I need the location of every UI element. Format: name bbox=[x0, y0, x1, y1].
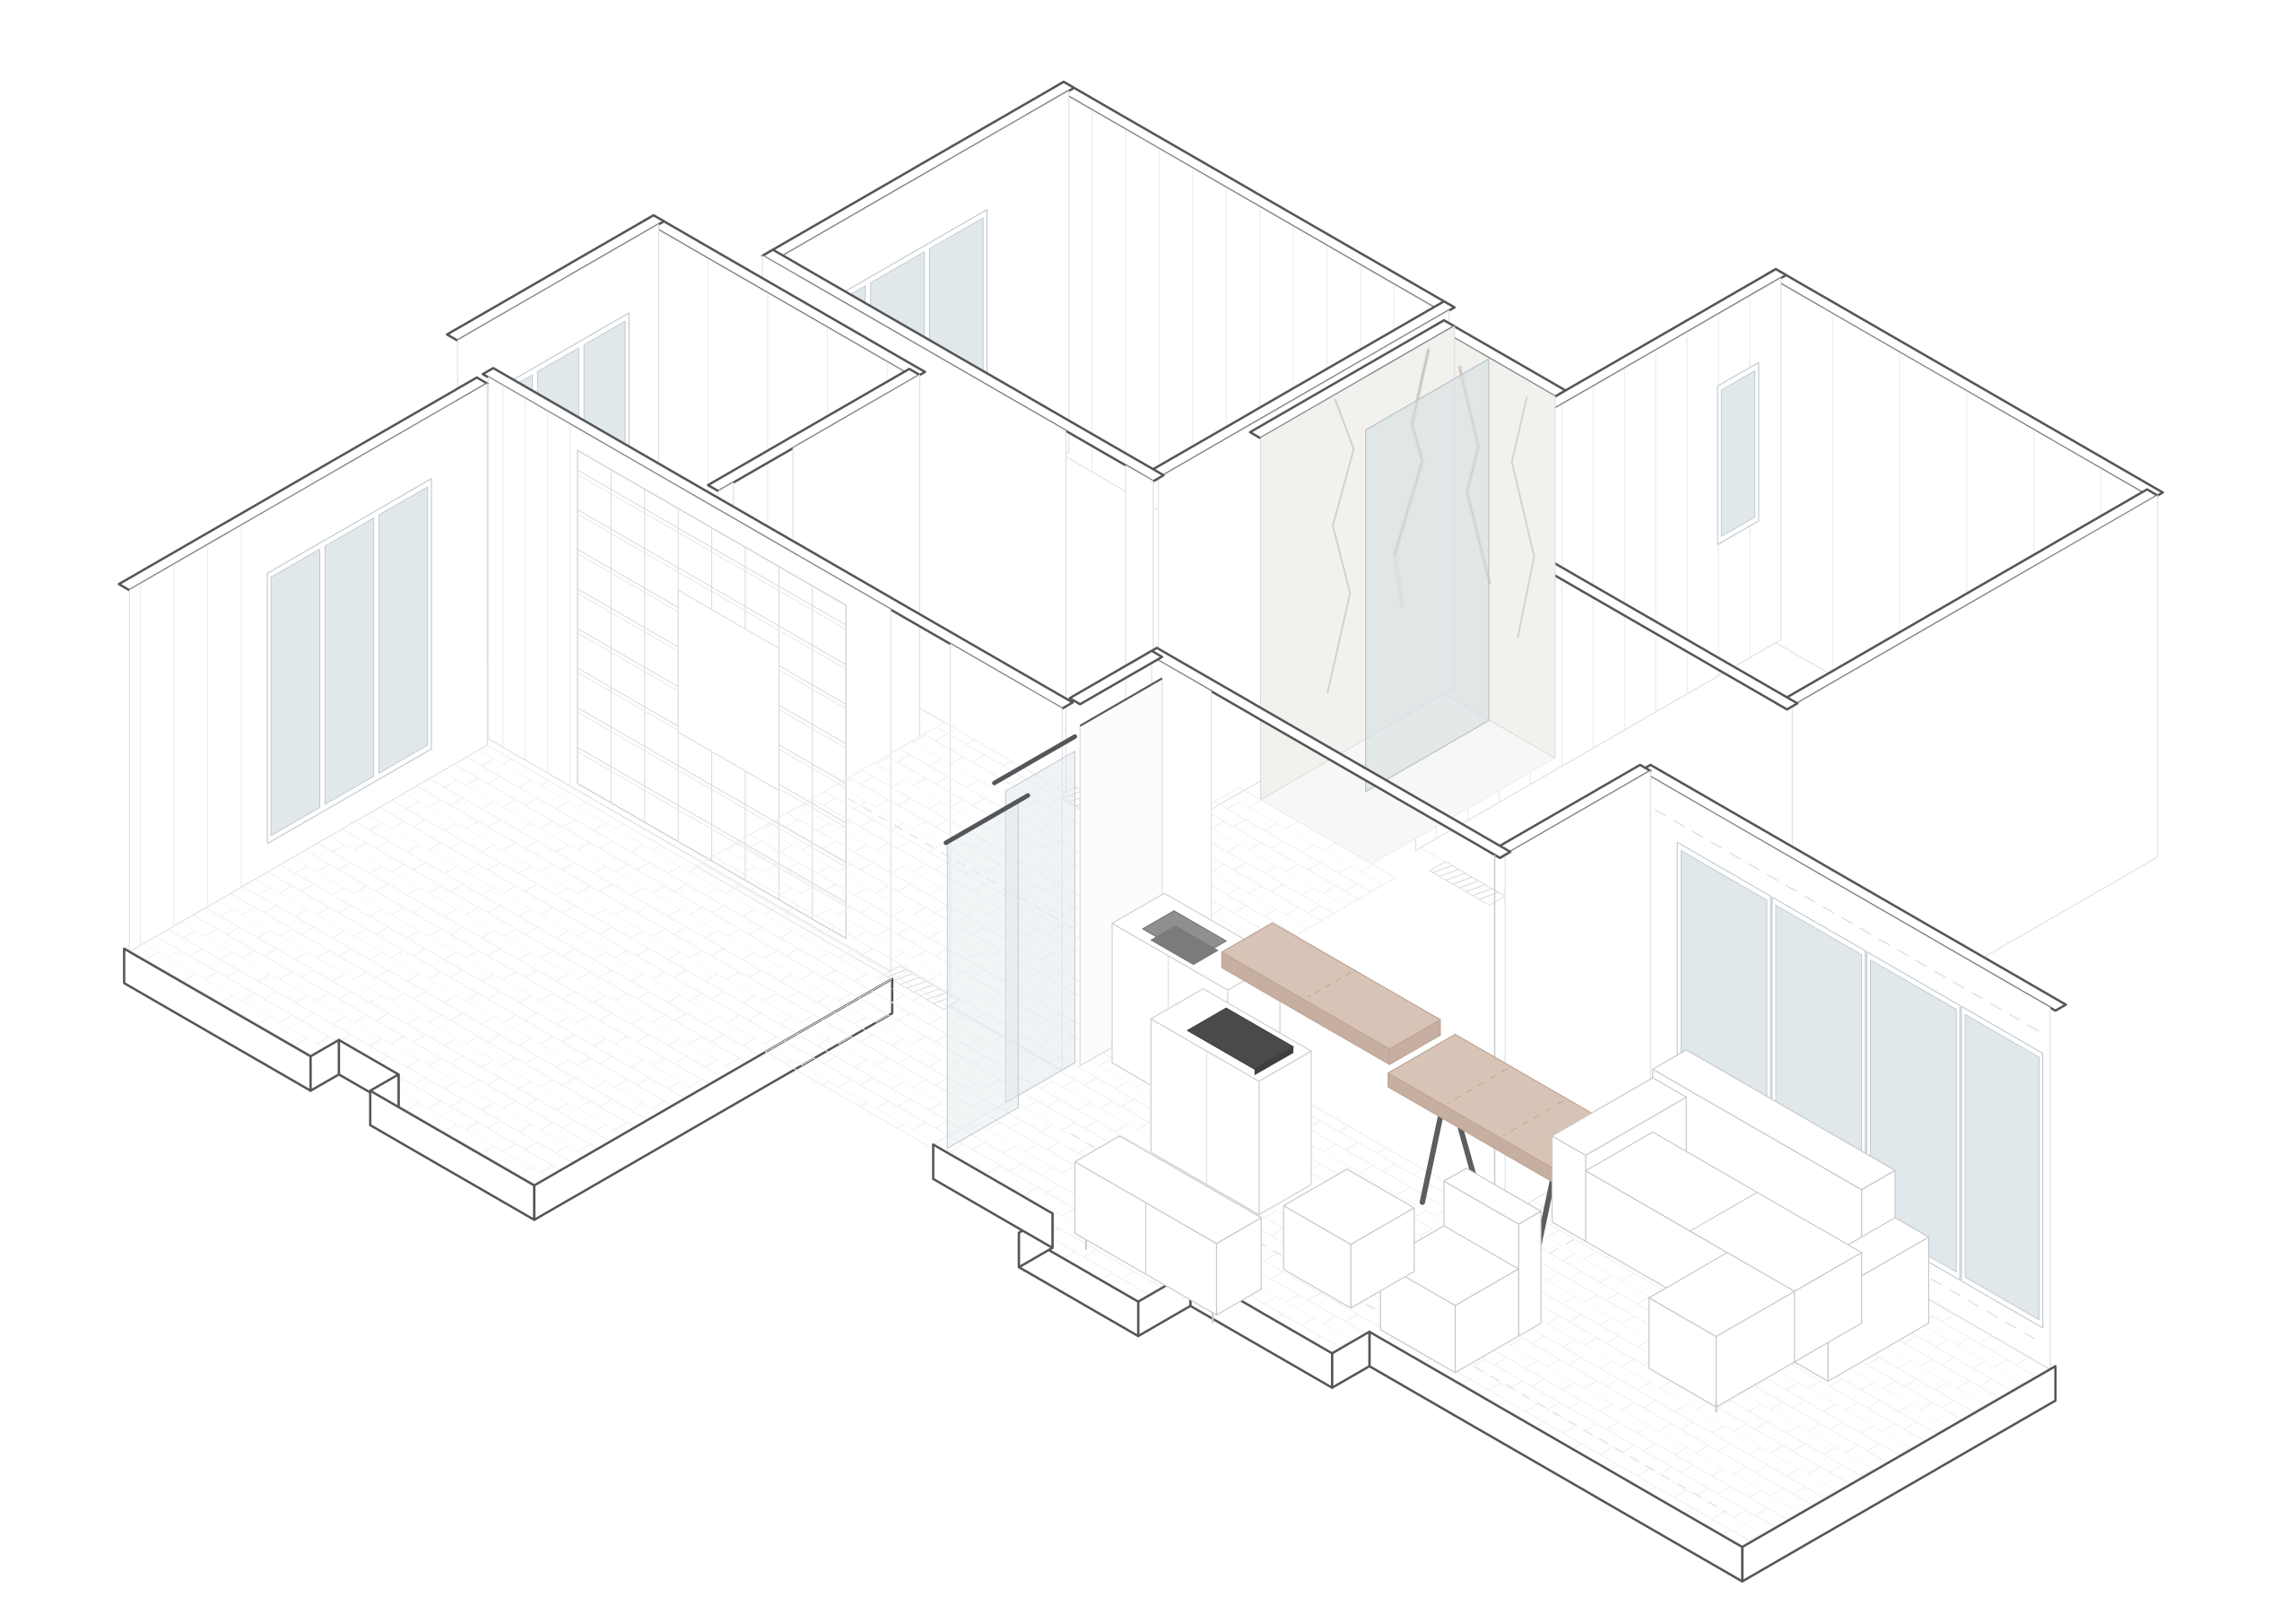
study-window-pane bbox=[379, 487, 428, 773]
rain-dash bbox=[1254, 784, 1257, 794]
apartment-axonometric-drawing bbox=[0, 0, 2296, 1623]
sliding-glass-pane bbox=[947, 802, 1018, 1148]
study-window-pane bbox=[271, 549, 319, 835]
umbrella-spoke bbox=[1426, 918, 1464, 940]
speckle bbox=[1483, 959, 1486, 964]
speckle bbox=[1477, 1157, 1480, 1161]
speckle bbox=[1469, 957, 1472, 961]
drawing-canvas bbox=[0, 0, 2296, 1623]
umbrella-spoke bbox=[1437, 894, 1463, 940]
umbrella-hub bbox=[1412, 872, 1416, 880]
study-window-pane bbox=[325, 518, 373, 804]
umbrella-spoke bbox=[1390, 862, 1414, 904]
bathroom-glass-partition bbox=[1366, 359, 1489, 791]
umbrella-spoke bbox=[1464, 909, 1490, 955]
speckle bbox=[1485, 998, 1488, 1002]
green-dot bbox=[1397, 947, 1417, 989]
dressing-window-pane bbox=[1721, 370, 1754, 536]
hatched-square-hole bbox=[1376, 886, 1401, 930]
speckle bbox=[1489, 1025, 1492, 1029]
speckle bbox=[1492, 1165, 1494, 1169]
lounge-back-face bbox=[1518, 1211, 1541, 1336]
living-window-4-pane bbox=[1965, 1014, 2039, 1319]
umbrella-spoke bbox=[1414, 875, 1439, 917]
umbrella-spoke bbox=[1437, 924, 1463, 970]
umbrella-spoke bbox=[1464, 940, 1490, 985]
umbrella-hub bbox=[1461, 936, 1465, 944]
speckle bbox=[1502, 976, 1505, 980]
